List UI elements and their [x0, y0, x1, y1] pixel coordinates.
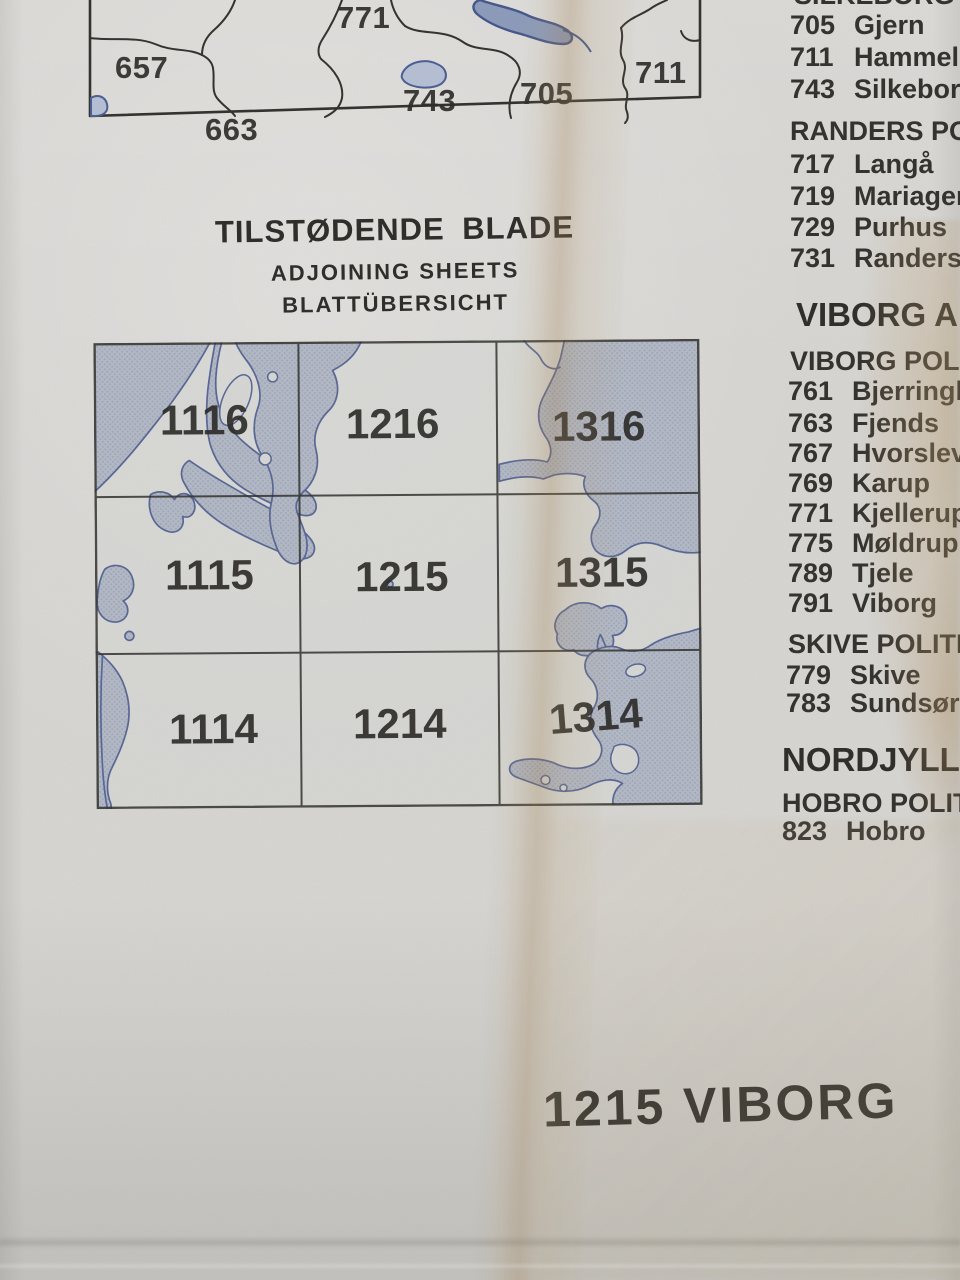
heading-german: BLATTÜBERSICHT: [200, 288, 590, 319]
district-entry: 769 Karup: [788, 470, 930, 497]
district-code: 711: [790, 44, 839, 71]
top-district-map: 771 657 743 705 711 663: [85, 0, 705, 150]
map-label-711: 711: [635, 57, 687, 88]
district-entry: 719 Mariager: [790, 183, 960, 210]
map-sheet-photo: 771 657 743 705 711 663 TILSTØDENDE BLAD…: [0, 0, 960, 1280]
district-entry: 789 Tjele: [788, 560, 914, 587]
heading-english: ADJOINING SHEETS: [200, 256, 590, 287]
district-name: Tjele: [852, 560, 914, 587]
sheet-number-1316: 1316: [552, 405, 646, 448]
map-label-743: 743: [403, 85, 456, 116]
county-heading-nordjylland: NORDJYLLAN: [782, 743, 960, 776]
district-code: 719: [790, 183, 839, 210]
sheet-number-1315: 1315: [555, 551, 649, 594]
district-name: Gjern: [854, 12, 925, 39]
district-entry: 779 Skive: [786, 662, 921, 689]
district-name: Karup: [852, 470, 930, 497]
district-entry: 761 Bjerringbro: [788, 378, 960, 405]
district-code: 743: [790, 76, 839, 103]
district-entry: 791 Viborg: [788, 590, 937, 617]
map-label-705: 705: [520, 78, 573, 109]
district-code: 823: [782, 818, 831, 845]
district-entry: 767 Hvorslev: [788, 440, 960, 467]
district-code: 763: [788, 410, 837, 437]
district-entry: 783 Sundsøre: [786, 690, 960, 717]
district-name: Hvorslev: [852, 440, 960, 467]
district-code: 761: [788, 378, 837, 405]
district-name: Sundsøre: [850, 690, 960, 717]
district-code: 705: [790, 12, 839, 39]
district-name: Silkeborg: [854, 76, 960, 103]
district-name: Fjends: [852, 410, 939, 437]
district-name: Hammel: [854, 44, 959, 71]
district-entry: 717 Langå: [790, 151, 934, 178]
section-heading-skive: SKIVE POLITIKRE: [788, 631, 960, 658]
district-name: Bjerringbro: [852, 378, 960, 405]
district-entry: 729 Purhus: [790, 214, 947, 241]
district-name: Mariager: [854, 183, 960, 210]
section-heading-hobro: HOBRO POLITIKR: [782, 790, 960, 817]
district-entry: 771 Kjellerup: [788, 500, 960, 527]
map-label-771: 771: [337, 2, 390, 33]
lake-shape: [473, 0, 571, 44]
district-code: 791: [788, 590, 837, 617]
section-heading-randers: RANDERS POLI: [790, 118, 960, 145]
district-code: 789: [788, 560, 837, 587]
district-code: 731: [790, 245, 839, 272]
adjoining-sheets-grid: 1116 1216 1316 1115 1215 1315 1114 1214 …: [93, 339, 702, 809]
sheet-number-1116: 1116: [160, 399, 249, 442]
sheet-number-1215: 1215: [355, 556, 449, 599]
county-heading-viborg-amt: VIBORG AMT: [796, 298, 960, 331]
paper-crease: [0, 1262, 960, 1270]
district-entry: 763 Fjends: [788, 410, 939, 437]
map-label-657: 657: [115, 52, 168, 83]
sheet-number-1115: 1115: [165, 554, 254, 597]
paper-crease: [0, 1236, 960, 1248]
district-entry: 711 Hammel: [790, 44, 959, 71]
sheet-number-1214: 1214: [353, 703, 447, 746]
adjoining-sheets-heading: TILSTØDENDE BLADE ADJOINING SHEETS BLATT…: [199, 209, 590, 319]
district-code: 779: [786, 662, 835, 689]
district-name: Kjellerup: [852, 500, 960, 527]
top-district-map-svg: [85, 0, 705, 150]
district-name: Purhus: [854, 214, 947, 241]
heading-danish: TILSTØDENDE BLADE: [199, 209, 589, 250]
district-boundaries: [90, 0, 700, 123]
district-entry: 743 Silkeborg: [790, 76, 960, 103]
district-name: Langå: [854, 151, 934, 178]
district-entry: 731 Randers: [790, 245, 960, 272]
lake-shape: [91, 96, 107, 116]
district-code: 783: [786, 690, 835, 717]
district-name: Skive: [850, 662, 921, 689]
district-code: 771: [788, 500, 837, 527]
sheet-title: 1215 VIBORG: [542, 1075, 899, 1134]
sheet-number-1114: 1114: [169, 708, 258, 751]
district-entry: 775 Møldrup: [788, 530, 958, 557]
sheet-number-1216: 1216: [346, 403, 440, 446]
section-heading-silkeborg: SILKEBORG POL: [794, 0, 960, 9]
district-code: 769: [788, 470, 837, 497]
sheet-number-1314: 1314: [548, 692, 644, 741]
district-code: 767: [788, 440, 837, 467]
district-entry: 705 Gjern: [790, 12, 925, 39]
district-name: Hobro: [846, 818, 925, 845]
district-code: 775: [788, 530, 837, 557]
police-district-list: SILKEBORG POL 705 Gjern 711 Hammel 743 S…: [782, 0, 960, 900]
district-code: 717: [790, 151, 839, 178]
district-name: Møldrup: [852, 530, 958, 557]
district-name: Viborg: [852, 590, 937, 617]
district-entry: 823 Hobro: [782, 818, 925, 845]
section-heading-viborg: VIBORG POLITIK: [790, 348, 960, 375]
district-code: 729: [790, 214, 839, 241]
district-name: Randers: [854, 245, 960, 272]
map-label-663: 663: [205, 114, 258, 145]
